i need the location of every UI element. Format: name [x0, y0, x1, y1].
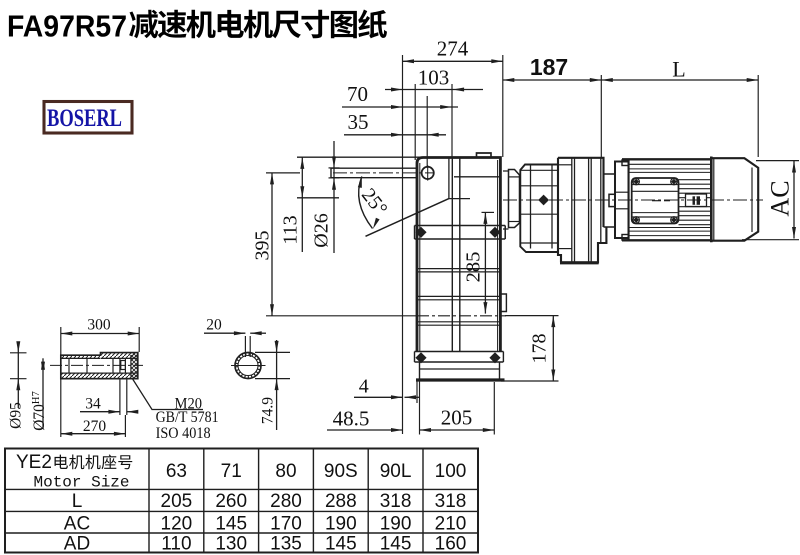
svg-text:Motor Size: Motor Size: [33, 474, 129, 492]
svg-text:34: 34: [85, 396, 101, 413]
svg-text:190: 190: [380, 514, 412, 535]
svg-text:71: 71: [221, 461, 242, 482]
svg-text:AC: AC: [64, 514, 90, 535]
svg-text:170: 170: [270, 514, 302, 535]
svg-text:274: 274: [437, 37, 469, 61]
svg-text:187: 187: [530, 54, 568, 80]
svg-text:103: 103: [418, 66, 450, 90]
svg-text:BOSERL: BOSERL: [47, 103, 122, 132]
svg-text:285: 285: [462, 252, 484, 283]
svg-text:190: 190: [325, 514, 357, 535]
svg-text:ISO 4018: ISO 4018: [156, 425, 211, 442]
svg-text:AD: AD: [64, 534, 90, 555]
svg-text:110: 110: [161, 534, 191, 555]
svg-text:100: 100: [435, 461, 467, 482]
svg-text:L: L: [672, 57, 685, 82]
svg-text:145: 145: [380, 534, 412, 555]
svg-text:270: 270: [83, 418, 107, 435]
svg-text:YE2: YE2: [16, 452, 52, 473]
svg-text:318: 318: [380, 491, 412, 512]
svg-text:318: 318: [435, 491, 467, 512]
svg-text:90S: 90S: [324, 461, 358, 482]
svg-text:80: 80: [275, 461, 296, 482]
svg-text:113: 113: [280, 215, 302, 244]
svg-text:GB/T 5781: GB/T 5781: [156, 409, 219, 426]
svg-text:63: 63: [166, 461, 187, 482]
svg-text:280: 280: [270, 491, 302, 512]
svg-text:48.5: 48.5: [333, 407, 370, 431]
svg-text:Ø95: Ø95: [8, 402, 25, 429]
svg-text:135: 135: [270, 534, 302, 555]
svg-text:395: 395: [252, 231, 274, 261]
svg-text:120: 120: [161, 514, 193, 535]
svg-text:288: 288: [325, 491, 357, 512]
svg-text:178: 178: [529, 334, 551, 364]
svg-text:70: 70: [347, 82, 368, 106]
svg-text:205: 205: [441, 406, 473, 430]
svg-text:4: 4: [359, 376, 369, 398]
svg-text:90L: 90L: [380, 461, 412, 482]
svg-text:300: 300: [87, 317, 111, 334]
svg-text:74.9: 74.9: [260, 397, 277, 424]
svg-text:Ø26: Ø26: [311, 213, 333, 247]
svg-text:FA97R57: FA97R57: [7, 9, 127, 44]
svg-text:L: L: [72, 491, 83, 512]
svg-text:160: 160: [435, 534, 467, 555]
svg-text:20: 20: [206, 317, 222, 334]
svg-text:130: 130: [215, 534, 247, 555]
svg-text:35: 35: [348, 110, 369, 134]
svg-text:AC: AC: [766, 180, 795, 216]
svg-text:145: 145: [325, 534, 357, 555]
svg-text:210: 210: [435, 514, 467, 535]
svg-text:205: 205: [161, 491, 193, 512]
svg-text:260: 260: [215, 491, 247, 512]
svg-text:145: 145: [215, 514, 247, 535]
